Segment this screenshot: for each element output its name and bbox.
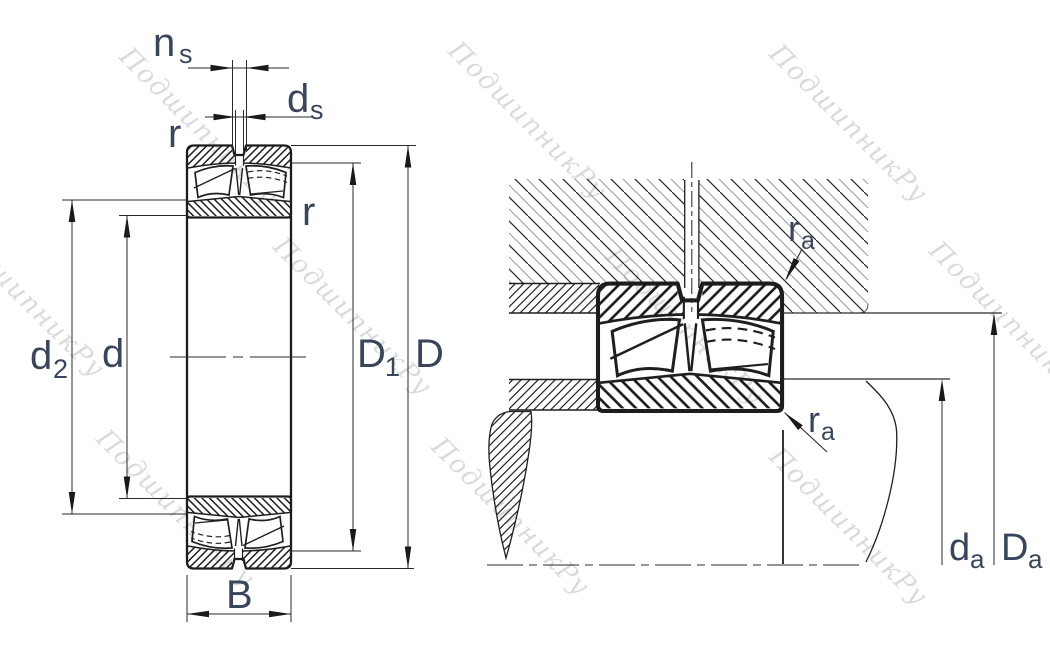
ra-bottom-arrow [785,413,803,431]
label-D: D [415,332,444,376]
label-d2-sub: 2 [53,354,68,384]
label-ns-sub: s [179,39,193,69]
label-r-side: r [302,190,315,234]
B-arrow-right [269,611,291,618]
label-ra-top: r [788,208,800,249]
ns-arrow-right [247,65,269,72]
technical-drawing-page: ПодшипникРу ПодшипникРу ПодшипникРу Подш… [0,0,1050,650]
d2-arrow-top [69,200,76,222]
shaft-strip [509,380,599,411]
bearing-section-bottom [187,497,291,570]
label-Da: D [1001,527,1028,569]
groove-extension-lines [233,60,247,150]
label-ra-bottom: r [808,399,820,440]
label-da-sub: a [970,544,985,574]
d-arrow-bottom [124,477,131,499]
label-r-top: r [168,112,181,156]
watermark: ПодшипникРу [922,235,1050,406]
da-arrow [939,379,946,401]
watermark-layer: ПодшипникРу ПодшипникРу ПодшипникРу Подш… [0,35,1050,612]
D-arrow-bottom [405,547,412,569]
D1-arrow-top [350,163,357,185]
right-view-mounting-section [487,162,1002,565]
B-arrow-left [187,611,209,618]
ns-arrow-left [211,65,233,72]
watermark: ПодшипникРу [762,441,933,612]
label-B: B [226,573,253,617]
label-ra-bottom-sub: a [821,418,835,446]
bearing-technical-drawing: ПодшипникРу ПодшипникРу ПодшипникРу Подш… [0,0,1050,650]
D-arrow-top [405,146,412,168]
label-D1: D [357,332,386,376]
d2-arrow-bottom [69,492,76,514]
D1-arrow-bottom [350,529,357,551]
label-D1-sub: 1 [385,352,400,382]
d-arrow-top [124,216,131,238]
label-ds: d [287,77,309,121]
label-da: d [949,527,970,569]
label-Da-sub: a [1028,544,1043,574]
label-ra-top-sub: a [801,227,815,255]
cover-strip-top [509,284,599,313]
label-ds-sub: s [310,95,324,125]
label-d2: d [30,334,52,378]
label-ns: n [153,21,175,65]
label-d: d [102,332,124,376]
